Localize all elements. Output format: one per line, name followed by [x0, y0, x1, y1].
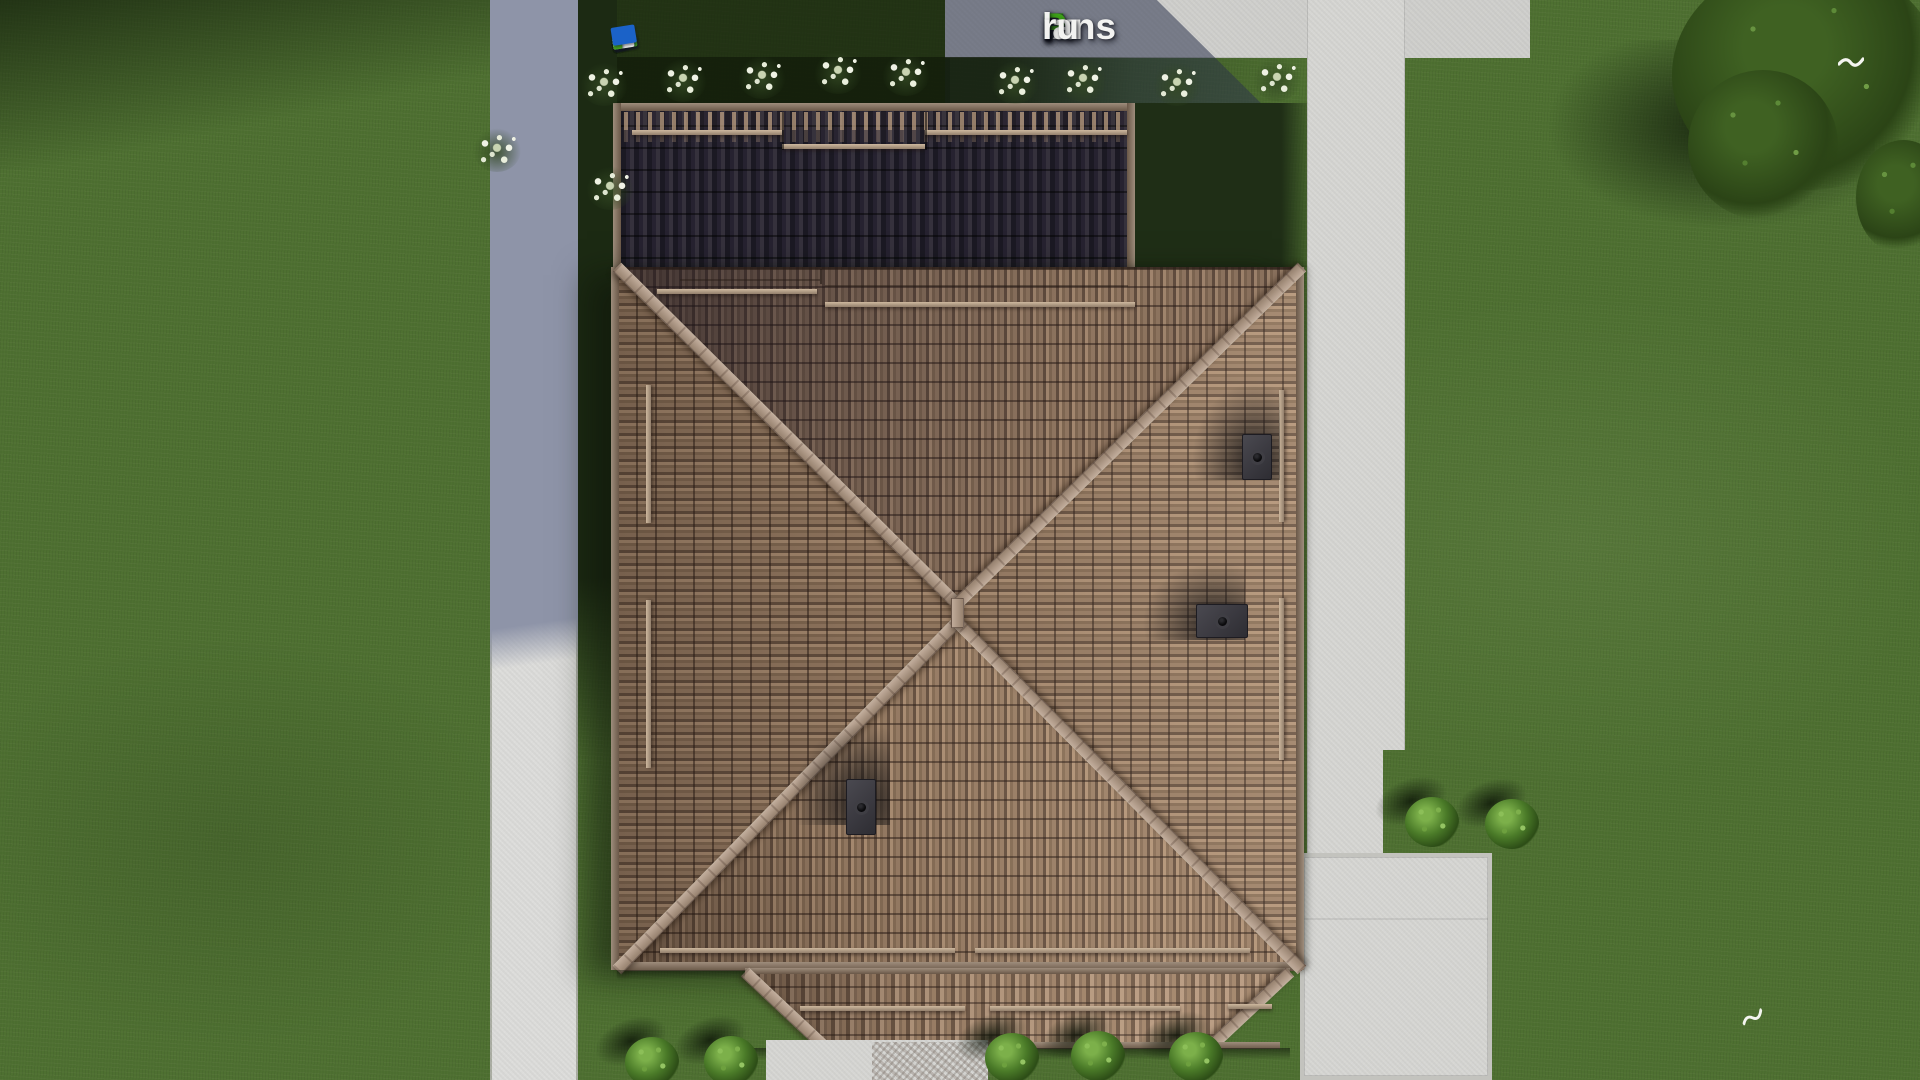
flower-bush: [1253, 57, 1301, 101]
main-roof-fascia-left: [611, 267, 619, 970]
render-viewport: FixPlans.ru: [0, 0, 1920, 1080]
flower-bush: [991, 60, 1039, 104]
bush: [1405, 797, 1459, 847]
snow-guard: [1279, 598, 1284, 760]
flue-pipe-icon: [854, 800, 869, 815]
bush: [625, 1037, 679, 1080]
flower-bush: [580, 62, 628, 106]
rear-roof-fascia-right: [1127, 103, 1135, 267]
porch-fascia-top: [745, 968, 1290, 974]
roof-junction-line: [825, 285, 1128, 287]
snow-guard: [632, 130, 782, 135]
flower-bush: [882, 52, 930, 96]
snow-guard: [925, 130, 1127, 135]
snow-guard: [800, 1006, 965, 1011]
right-path: [1307, 0, 1405, 750]
flower-bush: [1059, 58, 1107, 102]
bush: [1169, 1032, 1223, 1080]
snow-guard: [975, 948, 1250, 953]
bush: [704, 1036, 758, 1080]
roof-junction-step: [820, 269, 822, 284]
snow-guard: [1228, 1004, 1272, 1009]
rear-roof-step-line: [782, 112, 784, 150]
bird-icon: [1838, 55, 1864, 71]
flue-pipe-icon: [1250, 450, 1265, 465]
topleft-tree-shade: [0, 0, 500, 170]
chimney: [1242, 434, 1272, 480]
snow-guard: [657, 289, 817, 294]
flower-bush: [586, 166, 634, 210]
flower-bush: [814, 50, 862, 94]
right-path-connector: [1307, 750, 1383, 853]
rear-roof-step-line: [925, 112, 927, 150]
rear-strip-shade: [617, 57, 1307, 104]
chimney: [846, 779, 876, 835]
chimney: [1196, 604, 1248, 638]
rear-roof-fascia-top: [613, 103, 1135, 111]
roof-junction-line: [680, 279, 820, 281]
bush: [1071, 1031, 1125, 1080]
snow-guard: [646, 600, 651, 768]
flower-bush: [738, 55, 786, 99]
bush: [985, 1033, 1039, 1080]
eave-shadow: [617, 970, 745, 980]
flower-bush: [1153, 62, 1201, 106]
roof-junction-line: [617, 267, 1302, 270]
center-ridge: [951, 598, 964, 628]
bush: [1485, 799, 1539, 849]
snow-guard: [825, 302, 1135, 307]
main-roof-fascia-right: [1296, 267, 1304, 970]
vehicle-marker: [610, 24, 637, 46]
tree-canopy: [1688, 70, 1838, 220]
flue-pipe-icon: [1215, 614, 1230, 629]
logo-letter: ru: [1042, 6, 1079, 48]
rear-roof-lit-tiles: [623, 112, 1129, 130]
sideyard-shade: [1135, 103, 1307, 267]
flower-bush: [659, 58, 707, 102]
patio-seam: [1304, 918, 1488, 920]
left-road-house-shadow: [490, 0, 578, 672]
snow-guard: [782, 144, 925, 149]
snow-guard: [646, 385, 651, 523]
flower-bush: [473, 128, 521, 172]
snow-guard: [660, 948, 955, 953]
patio: [1300, 853, 1492, 1080]
